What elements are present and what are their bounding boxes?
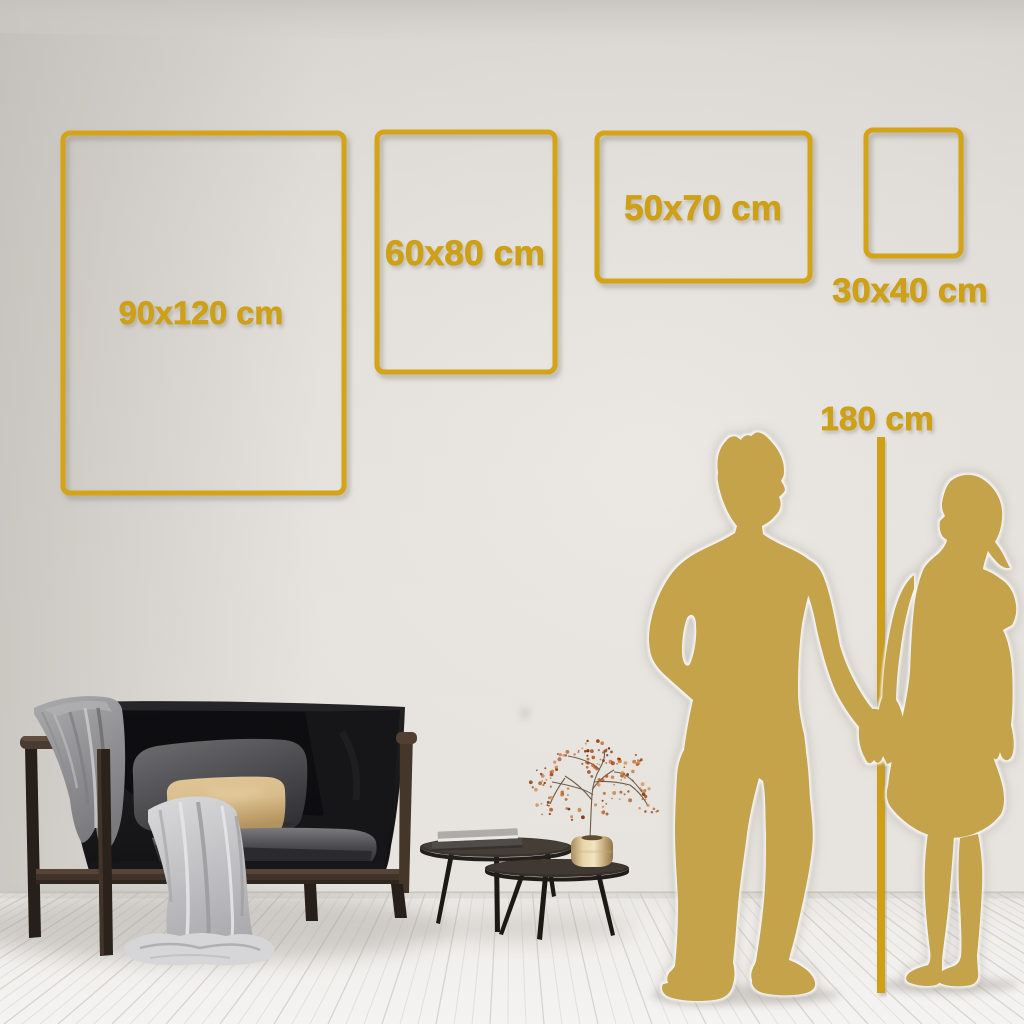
svg-text:30x40 cm: 30x40 cm: [832, 272, 987, 310]
svg-text:50x70 cm: 50x70 cm: [624, 189, 782, 228]
svg-text:180 cm: 180 cm: [820, 401, 934, 438]
svg-text:60x80 cm: 60x80 cm: [385, 233, 545, 273]
svg-text:90x120 cm: 90x120 cm: [119, 295, 283, 331]
